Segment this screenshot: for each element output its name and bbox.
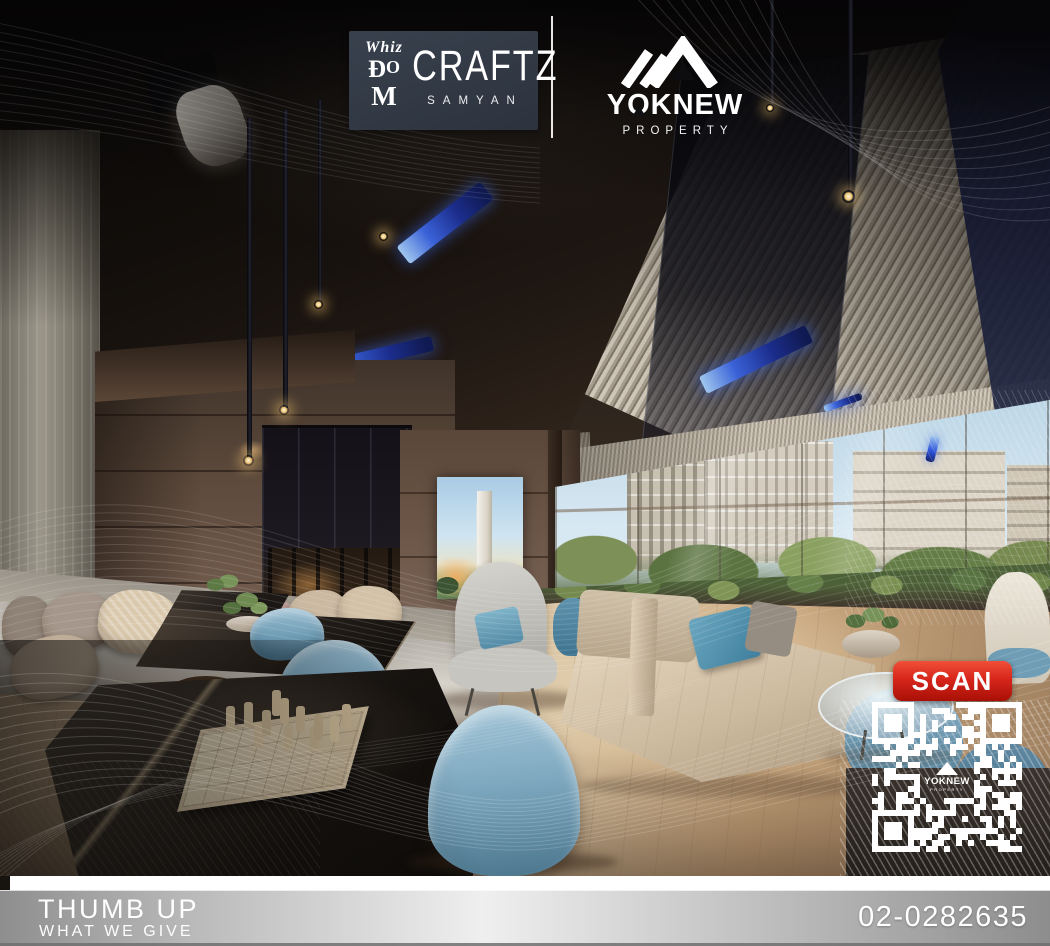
yoknew-o-peak-mark bbox=[633, 106, 645, 115]
pendant-light-rod bbox=[848, 0, 853, 194]
pendant-light-rod bbox=[318, 100, 322, 304]
yoknew-triangle-icon bbox=[936, 762, 958, 775]
yoknew-mountain-icon bbox=[613, 36, 737, 88]
footer-brand-name: THUMB UP bbox=[38, 894, 199, 925]
whizdom-whiz-text: Whiz bbox=[361, 39, 407, 57]
qr-center-logo: YOKNEW PROPERTY bbox=[915, 762, 979, 792]
yoknew-subtitle: PROPERTY bbox=[582, 125, 768, 137]
whizdom-do-text: ĐO bbox=[361, 56, 407, 84]
logo-divider-line bbox=[551, 16, 553, 138]
scan-label: SCAN bbox=[912, 666, 994, 697]
pendant-light-glow bbox=[279, 405, 289, 415]
pendant-light-rod bbox=[770, 0, 774, 108]
footer-tagline: WHAT WE GIVE bbox=[39, 923, 194, 941]
white-separator-strip bbox=[0, 876, 1050, 890]
project-wordmark: CRAFTZ SAMYAN bbox=[409, 45, 533, 107]
whizdom-m-text: M bbox=[361, 81, 407, 112]
qr-code[interactable]: YOKNEW PROPERTY bbox=[872, 702, 1022, 852]
project-name: CRAFTZ bbox=[412, 41, 530, 91]
pendant-light-rod bbox=[247, 118, 252, 458]
footer-bar: THUMB UP WHAT WE GIVE 02-0282635 bbox=[0, 890, 1050, 946]
sofa-shadow bbox=[580, 775, 880, 797]
scan-button[interactable]: SCAN bbox=[893, 661, 1012, 701]
whizdom-logo: Whiz ĐO M bbox=[361, 39, 407, 112]
strip-dark-notch bbox=[0, 876, 10, 890]
whizdom-craftz-logo-card: Whiz ĐO M CRAFTZ SAMYAN bbox=[349, 31, 538, 130]
sofa-armrest bbox=[628, 598, 658, 717]
qr-logo-name: YOKNEW bbox=[915, 776, 979, 787]
ad-flyer: Whiz ĐO M CRAFTZ SAMYAN YOKNEW PROPERTY … bbox=[0, 0, 1050, 946]
pendant-light-rod bbox=[283, 110, 288, 408]
pendant-light-glow bbox=[842, 190, 855, 203]
yoknew-name: YOKNEW bbox=[582, 89, 768, 122]
footer-phone-number[interactable]: 02-0282635 bbox=[858, 901, 1028, 934]
tower-illustration bbox=[477, 491, 492, 565]
downlight-spot bbox=[379, 232, 388, 241]
succulent-plant bbox=[834, 598, 906, 640]
corner-vignette bbox=[0, 640, 560, 876]
pendant-light-glow bbox=[243, 455, 254, 466]
gray-pillow bbox=[744, 600, 798, 657]
yoknew-logo: YOKNEW PROPERTY bbox=[582, 36, 768, 137]
qr-logo-subtitle: PROPERTY bbox=[915, 787, 979, 792]
pendant-light-glow bbox=[314, 300, 323, 309]
project-subtitle: SAMYAN bbox=[409, 95, 533, 107]
